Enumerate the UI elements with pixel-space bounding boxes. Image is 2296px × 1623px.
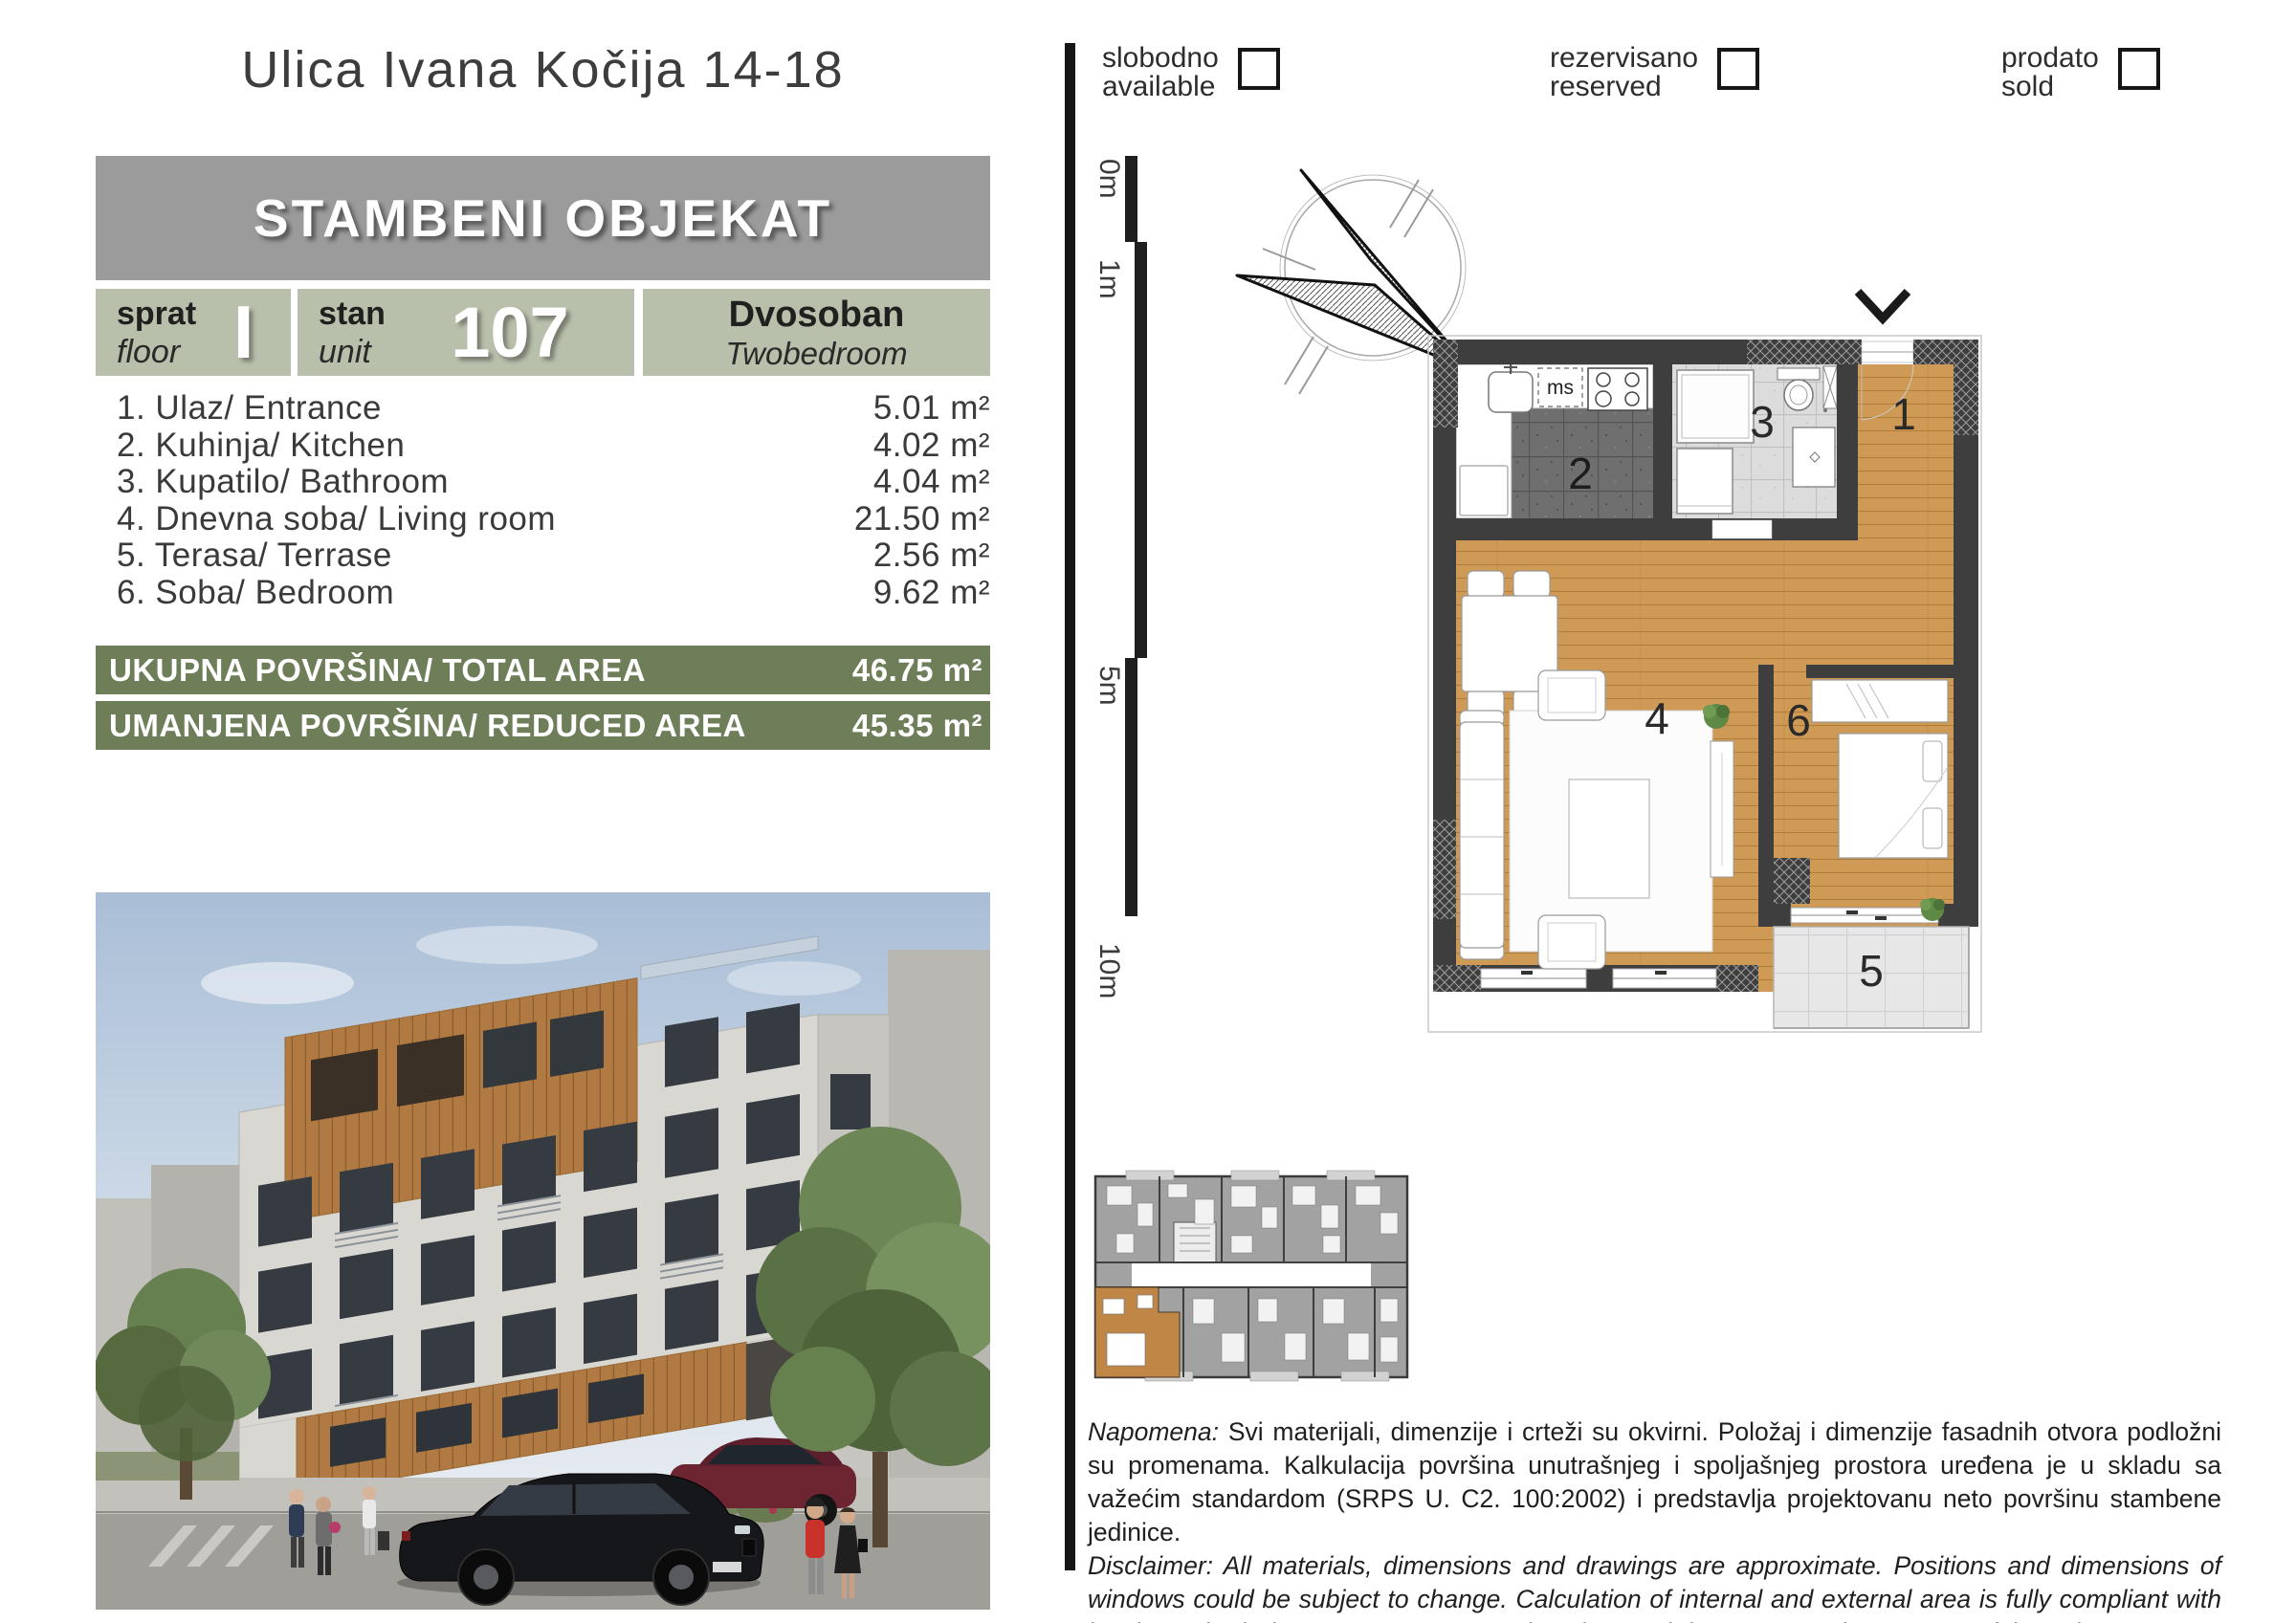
legend-reserved-sr: rezervisano bbox=[1550, 44, 1698, 73]
unit-number-value: 107 bbox=[386, 292, 634, 373]
building-photo bbox=[96, 892, 990, 1610]
unit-type-en: Twobedroom bbox=[725, 336, 907, 372]
vertical-divider bbox=[1065, 43, 1075, 1570]
building-photo-illustration bbox=[96, 892, 990, 1610]
room-list: 1. Ulaz/ Entrance 5.01 m² 2. Kuhinja/ Ki… bbox=[117, 390, 990, 611]
legend-sold-en: sold bbox=[2001, 73, 2099, 101]
plan-room-3-bathroom: 3 bbox=[1750, 397, 1775, 447]
unit-number-block: stan unit 107 bbox=[298, 289, 634, 376]
legend-reserved-en: reserved bbox=[1550, 73, 1698, 101]
kitchen-ms-label: ms bbox=[1547, 377, 1574, 399]
legend-checkbox-sold[interactable] bbox=[2118, 48, 2160, 90]
brochure-page: Ulica Ivana Kočija 14-18 STAMBENI OBJEKA… bbox=[0, 0, 2296, 1623]
floor-block: sprat floor I bbox=[96, 289, 291, 376]
plan-room-4-living: 4 bbox=[1645, 693, 1669, 743]
floor-label-en: floor bbox=[117, 333, 196, 371]
legend-item-reserved: rezervisano reserved bbox=[1550, 44, 1759, 101]
reduced-area-bar: UMANJENA POVRŠINA/ REDUCED AREA 45.35 m² bbox=[96, 701, 990, 750]
room-row-bathroom: 3. Kupatilo/ Bathroom 4.04 m² bbox=[117, 464, 990, 501]
floor-plan: ms bbox=[1425, 284, 1990, 1040]
notes-block: Napomena: Svi materijali, dimenzije i cr… bbox=[1088, 1415, 2221, 1623]
legend-item-sold: prodato sold bbox=[2001, 44, 2160, 101]
unit-type-sr: Dvosoban bbox=[729, 294, 905, 336]
unit-type-block: Dvosoban Twobedroom bbox=[643, 289, 990, 376]
plan-room-6-bedroom: 6 bbox=[1786, 695, 1811, 745]
legend-sold-sr: prodato bbox=[2001, 44, 2099, 73]
floor-label-sr: sprat bbox=[117, 295, 196, 333]
floor-overview-plan bbox=[1088, 1165, 1415, 1387]
napomena-text: Svi materijali, dimenzije i crteži su ok… bbox=[1088, 1417, 2221, 1546]
scale-label-10m: 10m bbox=[1096, 943, 1125, 998]
legend-available-sr: slobodno bbox=[1102, 44, 1219, 73]
legend-available-en: available bbox=[1102, 73, 1219, 101]
legend-item-available: slobodno available bbox=[1102, 44, 1280, 101]
total-area-bar: UKUPNA POVRŠINA/ TOTAL AREA 46.75 m² bbox=[96, 646, 990, 694]
room-row-bedroom: 6. Soba/ Bedroom 9.62 m² bbox=[117, 575, 990, 612]
napomena-paragraph: Napomena: Svi materijali, dimenzije i cr… bbox=[1088, 1415, 2221, 1549]
legend-checkbox-available[interactable] bbox=[1238, 48, 1280, 90]
plan-room-2-kitchen: 2 bbox=[1568, 449, 1593, 498]
unit-label-en: unit bbox=[319, 333, 386, 371]
room-row-entrance: 1. Ulaz/ Entrance 5.01 m² bbox=[117, 390, 990, 428]
scale-label-0m: 0m bbox=[1096, 159, 1125, 199]
floor-value: I bbox=[196, 289, 291, 376]
room-row-living: 4. Dnevna soba/ Living room 21.50 m² bbox=[117, 501, 990, 538]
entrance-arrow-icon bbox=[1858, 292, 1908, 318]
legend-checkbox-reserved[interactable] bbox=[1717, 48, 1759, 90]
page-title: Ulica Ivana Kočija 14-18 bbox=[96, 40, 990, 99]
disclaimer-label: Disclaimer: bbox=[1088, 1551, 1213, 1580]
scale-label-5m: 5m bbox=[1096, 666, 1125, 706]
disclaimer-text: All materials, dimensions and drawings a… bbox=[1088, 1551, 2221, 1623]
room-row-kitchen: 2. Kuhinja/ Kitchen 4.02 m² bbox=[117, 428, 990, 465]
building-type-banner: STAMBENI OBJEKAT bbox=[96, 156, 990, 280]
plan-room-1-entrance: 1 bbox=[1891, 389, 1916, 439]
unit-label-sr: stan bbox=[319, 295, 386, 333]
scale-label-1m: 1m bbox=[1096, 259, 1125, 299]
napomena-label: Napomena: bbox=[1088, 1417, 1219, 1446]
room-row-terrace: 5. Terasa/ Terrase 2.56 m² bbox=[117, 537, 990, 575]
scale-bar: 0m 1m 5m 10m bbox=[1096, 140, 1202, 1000]
disclaimer-paragraph: Disclaimer: All materials, dimensions an… bbox=[1088, 1549, 2221, 1623]
plan-room-5-terrace: 5 bbox=[1859, 946, 1884, 996]
banner-label: STAMBENI OBJEKAT bbox=[254, 187, 832, 249]
